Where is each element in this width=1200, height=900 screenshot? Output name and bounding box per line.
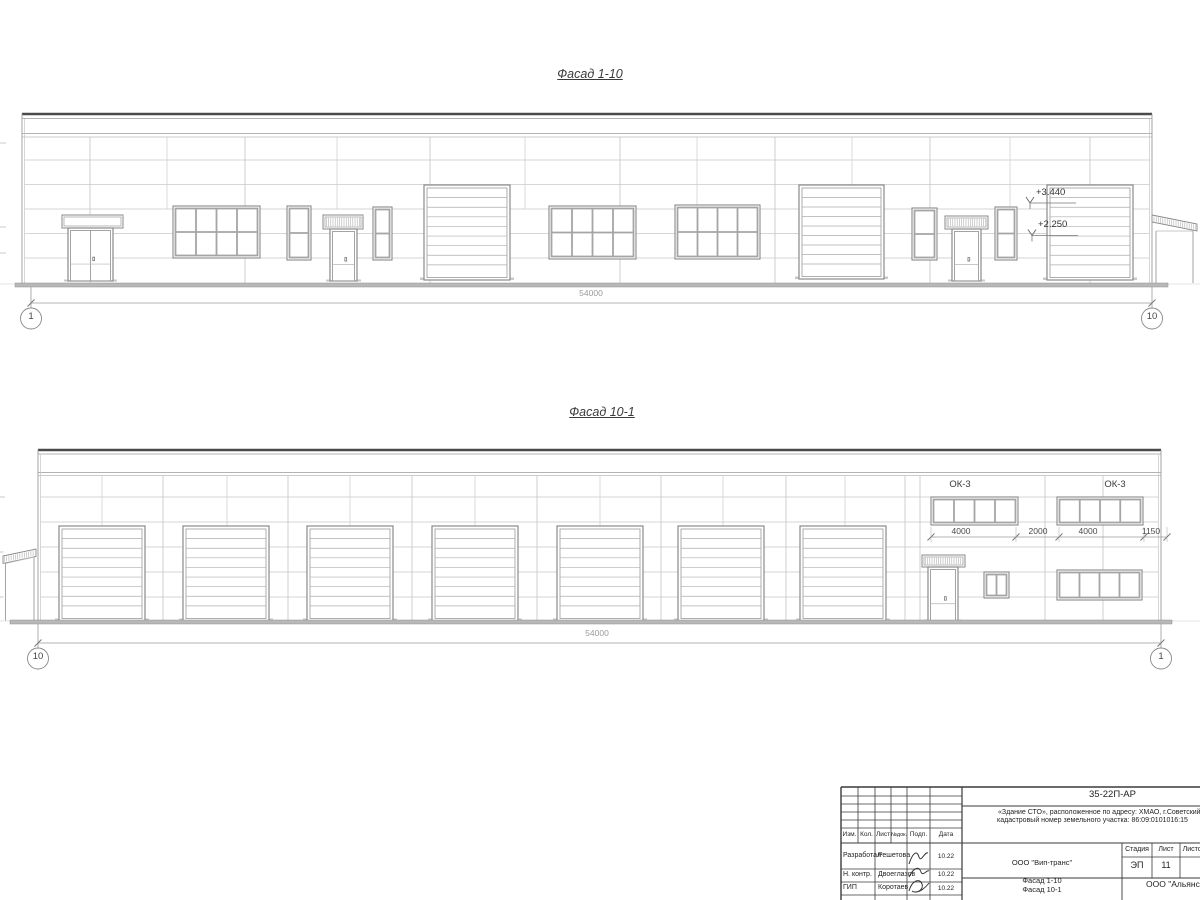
titleblock-org-right: ООО "Альянс" [1146, 880, 1200, 889]
titleblock-row2-name: Двоеглазов [878, 871, 915, 879]
drawing-sheet: Фасад 1-10 +3.440 +2.250 54000 1 10 Фаса… [0, 0, 1200, 900]
axis-bottom-left-number: 10 [27, 652, 49, 662]
titleblock-sheets-label: Листов [1180, 846, 1200, 854]
titleblock-sheet-value: 11 [1152, 861, 1180, 871]
titleblock-row2-date: 10.22 [930, 871, 962, 878]
titleblock-row3-name: Коротаев [878, 884, 908, 892]
axis-top-left-number: 1 [20, 312, 42, 322]
window-dim-2000: 2000 [1018, 527, 1058, 536]
titleblock-col-list: Лист [875, 831, 891, 838]
titleblock-subject-line1: Фасад 1-10 [962, 877, 1122, 885]
titleblock-col-kol: Кол. [858, 831, 875, 838]
window-dim-4000-a: 4000 [941, 527, 981, 536]
facade-top-total-dim: 54000 [561, 289, 621, 298]
axis-bottom-right-number: 1 [1150, 652, 1172, 662]
titleblock-row2-role: Н. контр. [843, 871, 872, 879]
elevation-mark-lower-label: +2.250 [1038, 220, 1067, 230]
titleblock-description-line1: «Здание СТО», расположенное по адресу: Х… [998, 809, 1200, 817]
ok3-label-left: ОК-3 [935, 480, 985, 490]
titleblock-stage-label: Стадия [1122, 846, 1152, 854]
window-dim-1150: 1150 [1131, 527, 1171, 536]
titleblock-row1-name: Решетова [878, 852, 910, 860]
titleblock-col-podp: Подп. [907, 831, 930, 838]
titleblock-col-ndok: №док. [891, 832, 907, 838]
titleblock-row3-role: ГИП [843, 884, 857, 892]
facade-bottom-total-dim: 54000 [567, 629, 627, 638]
elevation-mark-upper-label: +3.440 [1036, 188, 1065, 198]
axis-top-right-number: 10 [1141, 312, 1163, 322]
ok3-label-right: ОК-3 [1090, 480, 1140, 490]
facade-top-title: Фасад 1-10 [540, 68, 640, 82]
window-dim-4000-b: 4000 [1068, 527, 1108, 536]
titleblock-col-izm: Изм. [841, 831, 858, 838]
titleblock-col-data: Дата [930, 831, 962, 838]
titleblock-org-middle: ООО "Вип-транс" [962, 859, 1122, 867]
titleblock-sheet-label: Лист [1152, 846, 1180, 854]
titleblock-doc-code: 35-22П-АР [1040, 790, 1185, 800]
cad-linework [0, 0, 1200, 900]
titleblock-row1-date: 10.22 [930, 853, 962, 860]
facade-bottom-title: Фасад 10-1 [552, 406, 652, 420]
titleblock-stage-value: ЭП [1122, 861, 1152, 871]
titleblock-row1-role: Разработал [843, 852, 881, 860]
titleblock-subject-line2: Фасад 10-1 [962, 886, 1122, 894]
titleblock-row3-date: 10.22 [930, 885, 962, 892]
titleblock-description-line2: кадастровый номер земельного участка: 86… [997, 817, 1188, 825]
